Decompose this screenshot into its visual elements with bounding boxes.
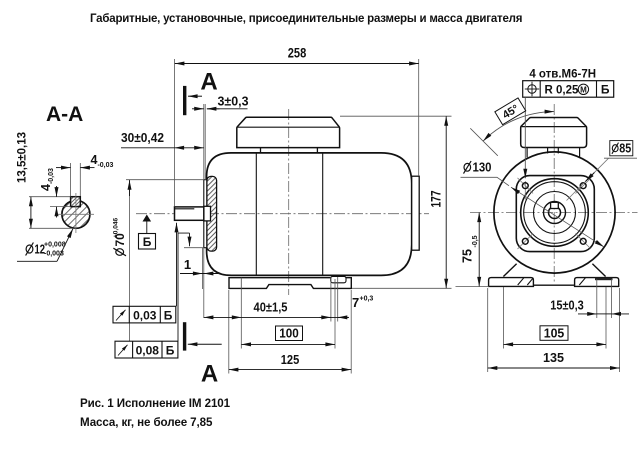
svg-text:105: 105 bbox=[544, 325, 565, 340]
svg-text:85: 85 bbox=[619, 141, 631, 155]
svg-text:+0,008: +0,008 bbox=[44, 242, 66, 249]
svg-text:0,08: 0,08 bbox=[136, 343, 160, 357]
svg-text:Б: Б bbox=[143, 235, 152, 249]
svg-text:+0,046: +0,046 bbox=[113, 218, 120, 238]
svg-text:Масса, кг, не более 7,85: Масса, кг, не более 7,85 bbox=[80, 416, 213, 429]
svg-text:258: 258 bbox=[288, 46, 307, 61]
svg-text:Рис. 1 Исполнение IM 2101: Рис. 1 Исполнение IM 2101 bbox=[80, 397, 231, 410]
svg-text:130: 130 bbox=[473, 160, 492, 175]
svg-text:135: 135 bbox=[543, 350, 564, 365]
svg-text:A: A bbox=[201, 361, 218, 388]
svg-text:R 0,25: R 0,25 bbox=[545, 85, 579, 97]
svg-text:A-A: A-A bbox=[46, 103, 83, 126]
svg-text:4 отв.M6-7Н: 4 отв.M6-7Н bbox=[529, 69, 596, 81]
svg-text:M: M bbox=[580, 85, 587, 94]
svg-text:Б: Б bbox=[166, 343, 175, 357]
svg-text:4-0,03: 4-0,03 bbox=[91, 153, 114, 169]
svg-text:3±0,3: 3±0,3 bbox=[218, 95, 249, 109]
svg-text:+0,3: +0,3 bbox=[360, 296, 374, 303]
svg-text:0,03: 0,03 bbox=[133, 308, 157, 322]
svg-text:30±0,42: 30±0,42 bbox=[121, 131, 164, 145]
svg-text:Габаритные, установочные, прис: Габаритные, установочные, присоединитель… bbox=[90, 13, 522, 25]
svg-text:-0,5: -0,5 bbox=[472, 235, 479, 247]
svg-text:13,5±0,13: 13,5±0,13 bbox=[15, 132, 29, 183]
svg-text:40±1,5: 40±1,5 bbox=[254, 301, 288, 315]
svg-text:177: 177 bbox=[429, 191, 444, 208]
svg-text:7: 7 bbox=[352, 295, 359, 310]
svg-text:A: A bbox=[200, 69, 217, 96]
svg-text:1: 1 bbox=[184, 257, 191, 272]
svg-text:Б: Б bbox=[164, 308, 173, 322]
svg-text:4-0,03: 4-0,03 bbox=[39, 168, 55, 191]
svg-text:100: 100 bbox=[279, 326, 299, 341]
svg-text:Б: Б bbox=[601, 83, 610, 97]
svg-text:125: 125 bbox=[281, 352, 300, 367]
svg-text:15±0,3: 15±0,3 bbox=[550, 299, 584, 313]
svg-text:75: 75 bbox=[460, 249, 475, 263]
